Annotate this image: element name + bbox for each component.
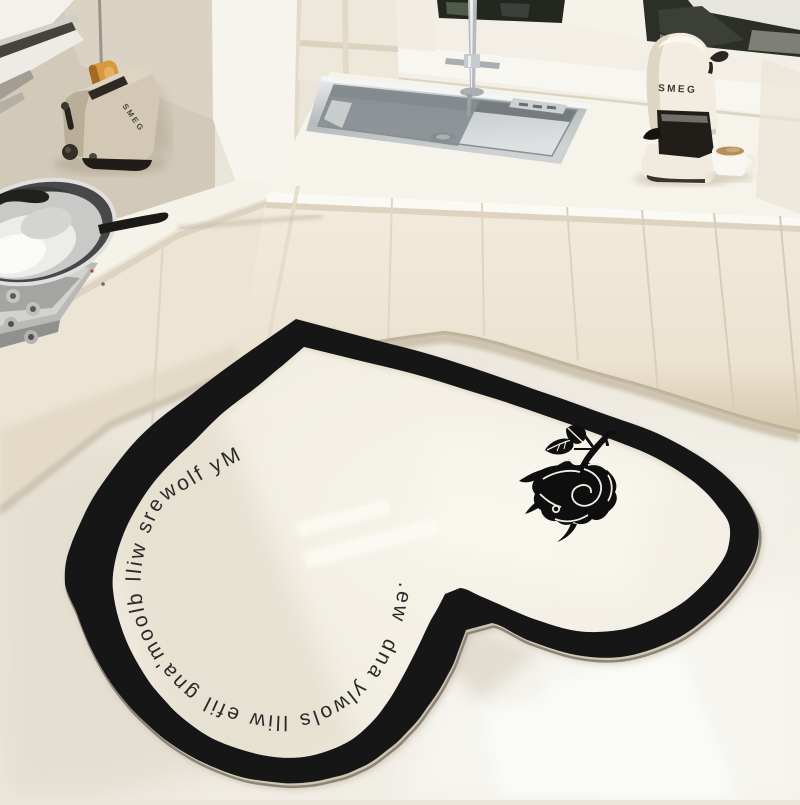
svg-text:SMEG: SMEG [658, 83, 698, 96]
